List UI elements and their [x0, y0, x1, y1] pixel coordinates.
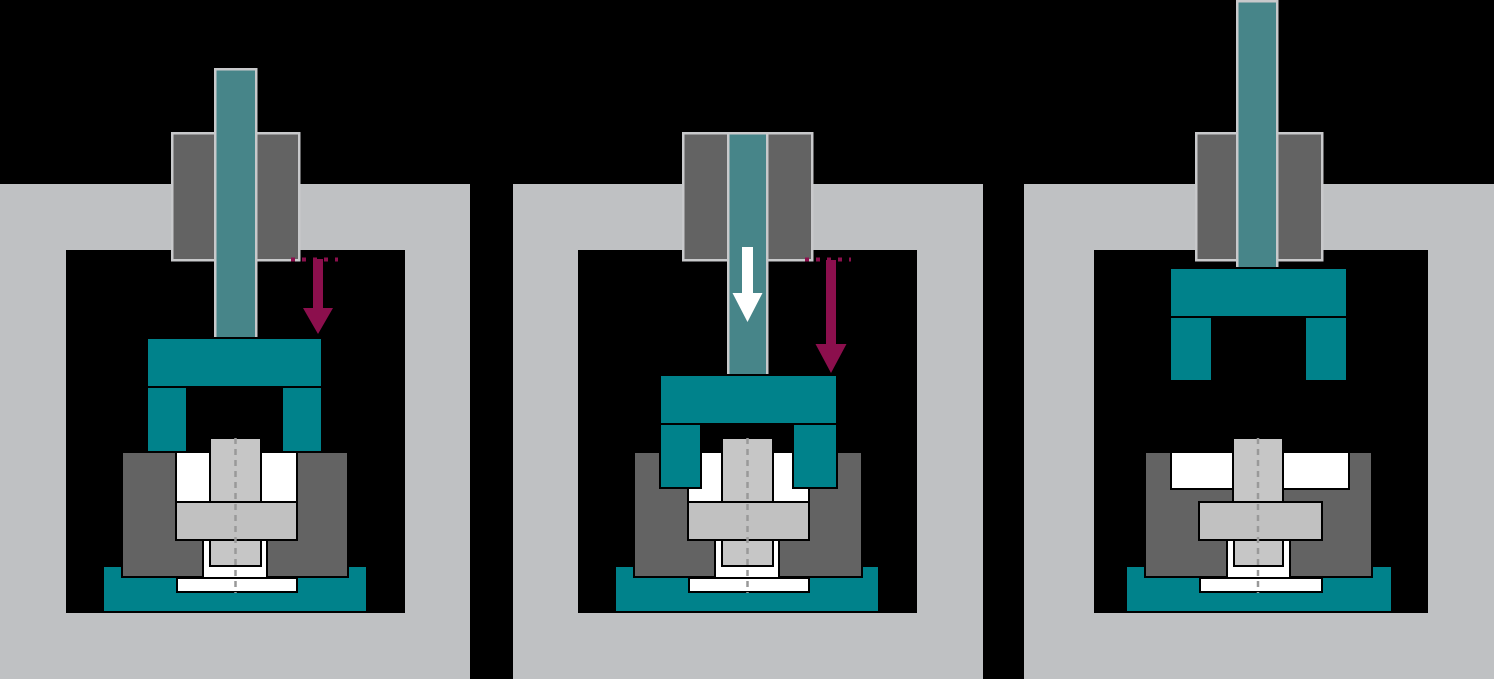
workpiece-flange [1199, 502, 1322, 540]
upper-tool-leg-left [147, 387, 187, 452]
upper-tool-plate [1170, 268, 1347, 317]
upper-tool-plate [660, 375, 837, 424]
ram [215, 69, 256, 338]
stage-1-approach [0, 69, 470, 679]
stage-3-retracted [1024, 1, 1494, 679]
workpiece-stem [1233, 438, 1283, 502]
ram [1237, 1, 1277, 268]
upper-tool-leg-right [282, 387, 322, 452]
diagram-stage [0, 0, 1494, 679]
ejector-plate [177, 578, 297, 592]
upper-tool-plate [147, 338, 322, 387]
ejector-plate [1200, 578, 1322, 592]
upper-tool-leg-right [1305, 317, 1347, 381]
ejector-plate [689, 578, 809, 592]
press-stages-diagram [0, 0, 1494, 679]
upper-tool-leg-left [660, 424, 701, 488]
workpiece-stem [722, 438, 773, 502]
stage-2-pressing [513, 133, 983, 679]
workpiece-stem [210, 438, 261, 502]
upper-tool-leg-left [1170, 317, 1212, 381]
upper-tool-leg-right [793, 424, 837, 488]
